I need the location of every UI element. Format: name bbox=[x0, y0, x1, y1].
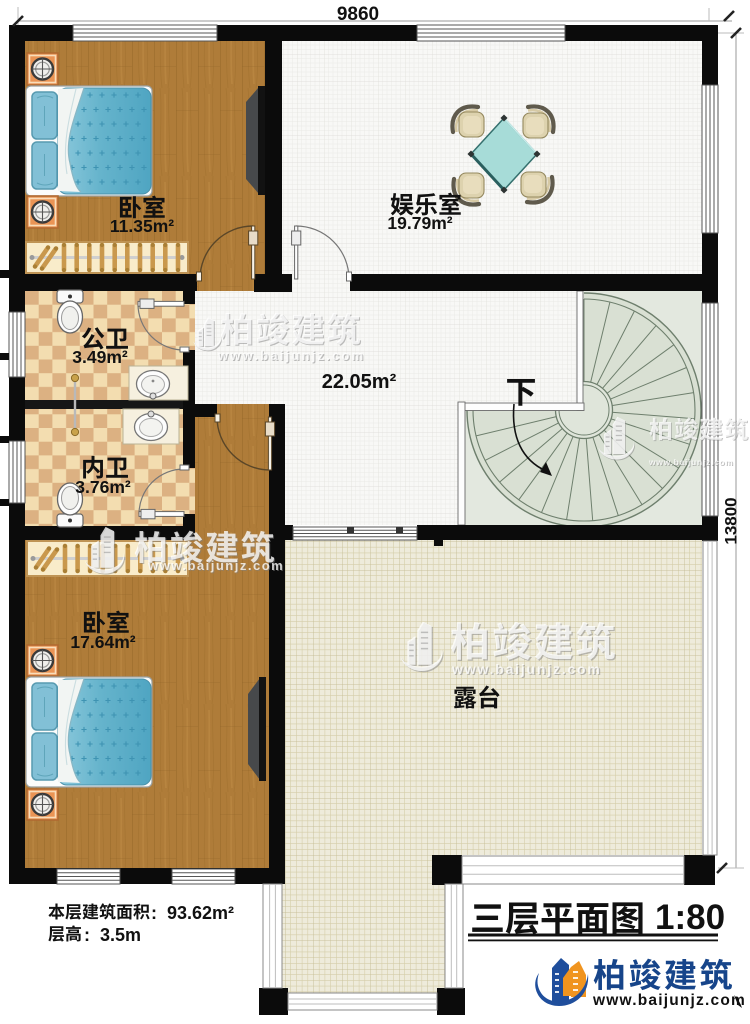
svg-text:www.baijunjz.com: www.baijunjz.com bbox=[217, 348, 365, 363]
svg-text:1:80: 1:80 bbox=[655, 898, 725, 937]
svg-text:www.baijunjz.com: www.baijunjz.com bbox=[147, 558, 284, 573]
svg-text:www.baijunjz.com: www.baijunjz.com bbox=[648, 457, 734, 467]
svg-text:: 3.5m: : 3.5m bbox=[84, 925, 141, 945]
svg-text:www.baijunjz.com: www.baijunjz.com bbox=[451, 661, 602, 677]
svg-text:www.baijunjz.com: www.baijunjz.com bbox=[592, 992, 746, 1009]
svg-text:22.05m²: 22.05m² bbox=[322, 371, 397, 393]
svg-text:13800: 13800 bbox=[722, 497, 741, 544]
svg-text:11.35m²: 11.35m² bbox=[110, 216, 174, 236]
svg-text:3.76m²: 3.76m² bbox=[75, 477, 131, 497]
svg-text:3.49m²: 3.49m² bbox=[72, 347, 128, 367]
svg-text:: 93.62m²: : 93.62m² bbox=[151, 903, 234, 923]
svg-text:19.79m²: 19.79m² bbox=[387, 213, 452, 233]
svg-text:9860: 9860 bbox=[337, 4, 379, 25]
svg-text:17.64m²: 17.64m² bbox=[70, 632, 135, 652]
